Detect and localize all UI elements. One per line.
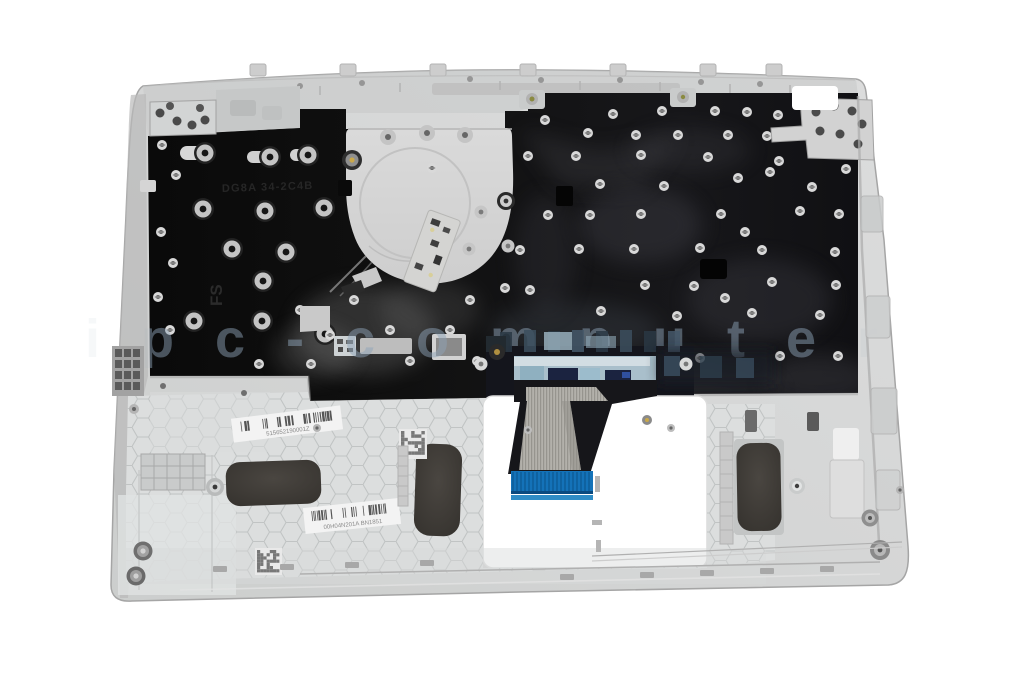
svg-text:FS: FS bbox=[207, 284, 226, 306]
